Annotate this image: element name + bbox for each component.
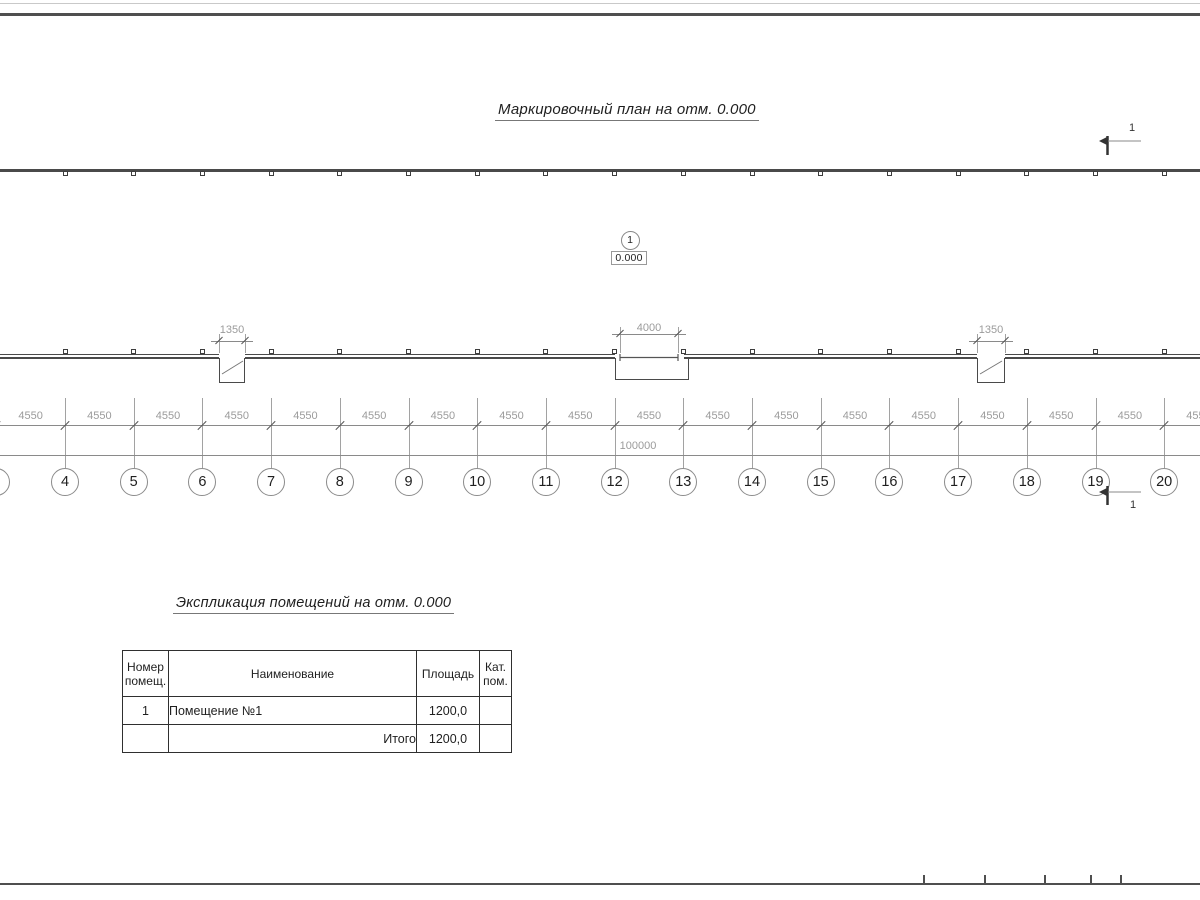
plan-linework-overlay (0, 0, 1200, 900)
drawing-sheet: Маркировочный план на отм. 0.000 Эксплик… (0, 0, 1200, 900)
header-room-number: Номер помещ. (123, 651, 169, 697)
table-total-row: Итого 1200,0 (123, 725, 512, 753)
cell-total-area: 1200,0 (417, 725, 480, 753)
section-arrow-bottom (1099, 488, 1108, 497)
table-row: 1 Помещение №1 1200,0 (123, 697, 512, 725)
cell-total-blank (123, 725, 169, 753)
cell-room-category (480, 697, 512, 725)
cell-total-category (480, 725, 512, 753)
section-arrow-top (1099, 137, 1108, 146)
cell-room-number: 1 (123, 697, 169, 725)
header-room-category: Кат. пом. (480, 651, 512, 697)
cell-total-label: Итого (169, 725, 417, 753)
header-room-area: Площадь (417, 651, 480, 697)
cell-room-name: Помещение №1 (169, 697, 417, 725)
door-leaf-line (222, 361, 243, 374)
door-leaf-line (980, 361, 1002, 374)
header-room-name: Наименование (169, 651, 417, 697)
room-schedule-table: Номер помещ. Наименование Площадь Кат. п… (122, 650, 512, 753)
cell-room-area: 1200,0 (417, 697, 480, 725)
